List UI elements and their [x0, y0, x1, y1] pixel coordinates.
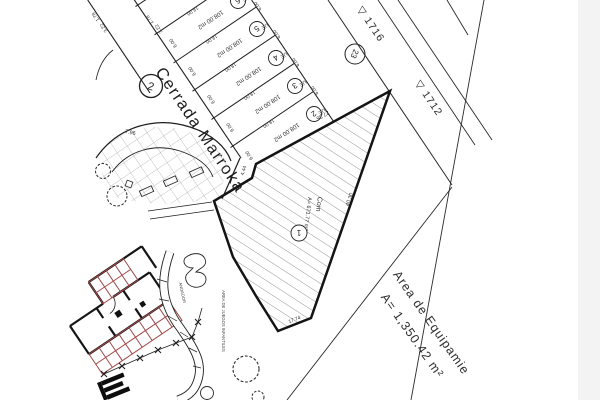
circle-feature — [201, 387, 214, 400]
parcel-number: 1 — [296, 228, 301, 237]
lot-dim-322: 3.22 — [99, 22, 110, 34]
lot-depth: 18.00 — [242, 89, 256, 101]
lot-number: 5 — [252, 24, 261, 34]
lot-dim-322: 3.22 — [154, 23, 165, 35]
lot-width: 6.00 — [225, 121, 236, 133]
site-plan-canvas: 2 Cerrada Marroka 108.00 m2 108.00 m2 10… — [0, 0, 600, 400]
line-short — [447, 0, 468, 35]
lot-width: 6.00 — [310, 84, 321, 96]
lot-area-labels: 108.00 m2 108.00 m2 108.00 m2 108.00 m2 … — [196, 8, 301, 143]
lot-depth: 18.00 — [261, 117, 275, 129]
lot-depth: 18.00 — [185, 4, 199, 16]
lot-width: 6.00 — [206, 93, 217, 105]
lot-width: 6.00 — [244, 149, 255, 161]
lot-area: 108.00 m2 — [272, 121, 301, 143]
block-number: 2 — [146, 80, 156, 93]
lot-depth: 18.00 — [223, 61, 237, 73]
lot-width: 6.00 — [272, 28, 283, 40]
tree-icon — [252, 391, 264, 400]
lot-area: 108.00 m2 — [234, 65, 263, 87]
lot-width: 6.00 — [187, 65, 198, 77]
walkway-label: ANDADOR — [178, 282, 187, 304]
lot-number: 3 — [290, 81, 299, 91]
tree-icon — [233, 356, 259, 382]
parcel-com: Com A= 671.77 m2 1 27.36 40.30 17.74 4.4… — [214, 91, 390, 331]
lot-width: 6.00 — [253, 0, 264, 12]
walkways: ANDADOR — [148, 202, 214, 400]
lot-23: 23 — [345, 44, 365, 64]
lot-number: 6 — [233, 0, 242, 6]
lot-number: 4 — [271, 53, 280, 63]
equipment-area: Area de Equipamie A= 1,350.42 m² — [378, 268, 472, 380]
line-1712-b — [398, 0, 492, 140]
curve-detail — [96, 50, 113, 80]
lot-23-number: 23 — [348, 48, 360, 60]
lot-area: 108.00 m2 — [196, 8, 225, 30]
playground-label: AREA DE JUEGOS INFANTILES — [221, 290, 226, 352]
benchmark-1712: ▽ 1712 — [412, 78, 445, 118]
lot-area: 108.00 m2 — [215, 36, 244, 58]
lot-width: 6.00 — [291, 56, 302, 68]
lot-area: 108.00 m2 — [253, 93, 282, 115]
parcel-dim-step: 4.44 — [240, 165, 249, 176]
lot-width: 6.00 — [168, 37, 179, 49]
lot-numbers: 6 UE 5 UE 4 UE 3 UE 2 UE — [231, 0, 327, 122]
column — [114, 310, 122, 318]
image-margin — [578, 0, 600, 400]
lot-depth: 18.00 — [204, 33, 218, 45]
planter-blob — [184, 254, 206, 288]
parcel-com-boundary — [214, 91, 390, 331]
lot-dim-178: 1.78 — [91, 11, 102, 23]
lot-width-dims-rear: 6.00 6.00 6.00 6.00 — [253, 0, 321, 96]
column — [139, 301, 146, 308]
benchmark-1716: ▽ 1716 — [354, 4, 387, 44]
site-plan: 2 Cerrada Marroka 108.00 m2 108.00 m2 10… — [0, 0, 600, 400]
lot-dim-178: 1.78 — [145, 14, 156, 26]
